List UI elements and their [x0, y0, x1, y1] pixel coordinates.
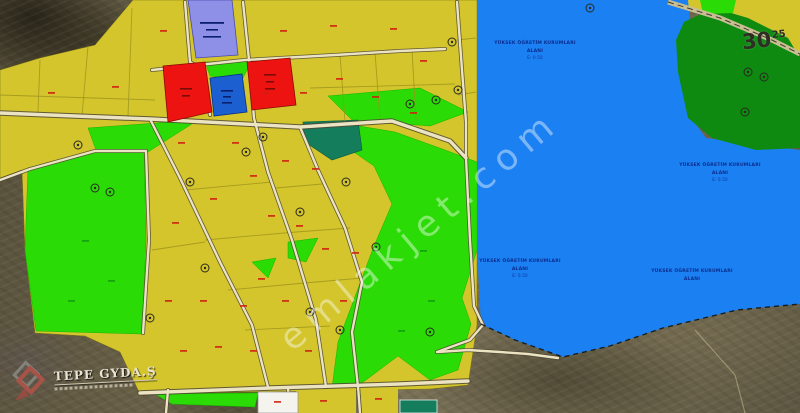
park-teal-small [400, 400, 437, 413]
zone-label-line2: ALANI [480, 48, 590, 56]
grid-coordinate-marker: 3025 [741, 26, 787, 54]
green-strip-bottom [155, 393, 258, 407]
zone-label-line3: E: 0.50 [468, 273, 572, 280]
red-block-1 [163, 62, 212, 122]
company-logo: TEPE GYDA.Ş [7, 348, 160, 408]
logo-diamond-icon [7, 357, 51, 405]
zone-label: YÜKSEK ÖĞRETİM KURUMLARI ALANI E: 0.50 [668, 162, 772, 184]
grid-marker-value: 30 [741, 27, 773, 54]
zone-label-line1: YÜKSEK ÖĞRETİM KURUMLARI [668, 162, 772, 170]
zone-label-line1: YÜKSEK ÖĞRETİM KURUMLARI [480, 40, 590, 48]
zone-label-line1: YÜKSEK ÖĞRETİM KURUMLARI [650, 268, 734, 276]
blue-block [210, 74, 247, 116]
zone-label: YÜKSEK ÖĞRETİM KURUMLARI ALANI [650, 268, 734, 283]
zone-label-line2: ALANI [468, 266, 572, 274]
zone-label-line2: ALANI [650, 276, 734, 284]
green-area-left [25, 151, 146, 334]
zone-label-line2: ALANI [668, 170, 772, 178]
grid-marker-superscript: 25 [771, 29, 786, 41]
terrain-track [695, 330, 745, 413]
red-block-2 [247, 58, 296, 110]
zone-label: YÜKSEK ÖĞRETİM KURUMLARI ALANI E: 0.50 [480, 40, 590, 62]
zone-label-line1: YÜKSEK ÖĞRETİM KURUMLARI [468, 258, 572, 266]
zone-label: YÜKSEK ÖĞRETİM KURUMLARI ALANI E: 0.50 [468, 258, 572, 280]
zone-label-line3: E: 0.50 [480, 55, 590, 62]
zoning-map-screenshot: YÜKSEK ÖĞRETİM KURUMLARI ALANI E: 0.50 Y… [0, 0, 800, 413]
zone-label-line3: E: 0.50 [668, 177, 772, 184]
